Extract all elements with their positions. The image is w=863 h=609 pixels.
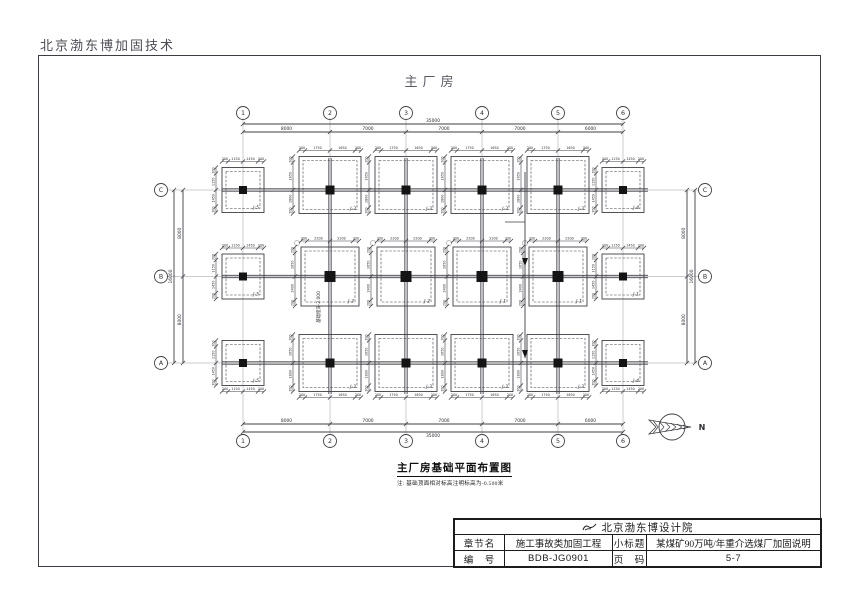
footing-dim: 1150 [611,387,619,391]
column-block [239,273,247,281]
footing-dim: 1150 [212,264,216,272]
grid-bubble-label: 5 [556,438,560,445]
grid-bubble-label: 6 [621,110,625,117]
footing-dim: 200 [592,340,596,346]
footing-dim: 200 [507,146,513,150]
footing-dim: 200 [429,237,435,241]
footing-dim: 200 [451,393,457,397]
sheet-number-label: 编 号 [455,551,505,566]
footing-dim: 200 [431,146,437,150]
footing-dim: 2200 [542,237,550,241]
column-block [619,186,627,194]
column-block [478,186,487,195]
footing-dim: 200 [592,167,596,173]
footing-dim: 200 [355,146,361,150]
footing-dim: 1150 [592,351,596,359]
footing-dim: 2400 [367,284,371,292]
grid-bubble-label: A [703,360,708,367]
footing-dim: 200 [443,300,447,306]
column-block [326,186,335,195]
footing-dim: 200 [529,237,535,241]
subtitle-label: 小标题 [613,535,647,550]
footing-dim: 200 [222,157,228,161]
column-block [553,271,564,282]
footing-dim: 2200 [466,237,474,241]
column-block [554,359,563,368]
footing-dim: 200 [451,146,457,150]
north-label: N [699,423,706,432]
footing-dim: 2400 [443,284,447,292]
footing-dim: 200 [441,334,445,340]
footing-dim: 200 [289,207,293,213]
footing-dim: 1650 [441,172,445,180]
grid-bubble-label: 3 [404,110,408,117]
footing-dim: 1650 [365,172,369,180]
grid-bubble-label: B [703,274,707,281]
footing-dim: 200 [212,340,216,346]
footing-dim: 200 [517,207,521,213]
footing-dim: 1800 [289,370,293,378]
footing-dim: 1750 [389,146,397,150]
footing-dim: 1650 [517,172,521,180]
footing-dim: 1150 [592,264,596,272]
footing-dim: 1450 [626,157,634,161]
footing-dim: 200 [453,237,459,241]
footing-label: J-3 [349,384,356,390]
footing-dim: 200 [355,393,361,397]
footing-dim: 1650 [289,172,293,180]
grid-bubble-label: 4 [480,438,484,445]
footing-dim: 200 [519,247,523,253]
footing-dim: 200 [583,146,589,150]
subtitle-value: 某煤矿90万吨/年重介选煤厂加固说明 [647,535,820,550]
institute-logo-icon [582,522,598,533]
footing-dim: 200 [517,334,521,340]
footing-dim: 1450 [592,194,596,202]
footing-dim: 1750 [465,393,473,397]
dim-bay-bottom: 6000 [585,418,596,424]
grid-bubble-label: A [159,360,164,367]
dim-bay-top: 7000 [514,126,525,132]
sheet-number-value: BDB-JG0901 [505,551,613,566]
dim-total-side: 16000 [168,269,174,283]
grid-bubble-label: C [159,187,164,194]
footing-dim: 1450 [246,244,254,248]
footing-dim: 1650 [566,146,574,150]
footing-label: J-3 [425,384,432,390]
title-block-row-2: 编 号 BDB-JG0901 页 码 5-7 [455,551,820,566]
footing-dim: 1800 [365,370,369,378]
footing-label: J-4 [632,205,639,211]
page-number-label: 页 码 [613,551,647,566]
drawing-caption: 主厂房基础平面布置图 注: 基础顶面相对标高注明标高为-0.500米 [397,458,512,487]
grid-bubble-label: 4 [480,110,484,117]
footing-dim: 200 [212,379,216,385]
footing-dim: 1650 [517,348,521,356]
column-block [478,359,487,368]
footing-dim: 2200 [314,237,322,241]
column-block [402,186,411,195]
footing-dim: 200 [365,334,369,340]
dim-bay-side: 8000 [681,314,687,325]
dim-bay-top: 7000 [438,126,449,132]
footing-dim: 1450 [592,281,596,289]
footing-dim: 200 [258,387,264,391]
footing-dim: 200 [291,247,295,253]
footing-dim: 1450 [212,281,216,289]
dim-total-side: 16000 [689,269,695,283]
footing-dim: 1450 [592,367,596,375]
footing-dim: 1800 [441,195,445,203]
footing-label: J-2 [347,299,354,305]
footing-dim: 1650 [443,261,447,269]
footing-dim: 1150 [611,244,619,248]
footing-dim: 2200 [413,237,421,241]
footing-dim: 1650 [414,393,422,397]
footing-dim: 200 [258,244,264,248]
grid-bubble-label: B [159,274,163,281]
column-block [619,273,627,281]
footing-dim: 200 [365,207,369,213]
footing-dim: 200 [365,385,369,391]
footing-dim: 200 [505,237,511,241]
footing-dim: 200 [375,393,381,397]
footing-dim: 1800 [517,195,521,203]
dim-bay-side: 8000 [177,227,183,238]
column-block [477,271,488,282]
footing-dim: 200 [519,300,523,306]
dim-total-bottom: 35000 [426,433,440,439]
footing-dim: 1150 [231,387,239,391]
footing-dim: 200 [592,379,596,385]
footing-dim: 1150 [212,178,216,186]
caption-note: 注: 基础顶面相对标高注明标高为-0.500米 [397,479,512,487]
dim-bay-bottom: 7000 [438,418,449,424]
footing-dim: 200 [258,157,264,161]
footing-dim: 200 [367,300,371,306]
footing-label: J-3 [349,206,356,212]
north-arrow-icon [659,414,685,440]
footing-dim: 1650 [338,146,346,150]
footing-label: J-4 [632,378,639,384]
footing-dim: 200 [299,146,305,150]
footing-dim: 200 [443,247,447,253]
footing-dim: 2200 [565,237,573,241]
footing-dim: 1150 [212,351,216,359]
footing-dim: 1750 [389,393,397,397]
chapter-name-label: 章节名 [455,535,505,550]
footing-dim: 1650 [490,146,498,150]
footing-dim: 1750 [313,393,321,397]
footing-label: J-3 [501,206,508,212]
footing-dim: 200 [289,334,293,340]
column-block [326,359,335,368]
column-block [239,359,247,367]
grid-bubble-label: 2 [328,438,332,445]
footing-dim: 1650 [566,393,574,397]
footing-dim: 1650 [367,261,371,269]
footing-dim: 200 [507,393,513,397]
page-number-value: 5-7 [647,551,820,566]
footing-dim: 200 [592,206,596,212]
footing-dim: 200 [638,244,644,248]
column-block [239,186,247,194]
footing-dim: 2400 [519,284,523,292]
dim-total-top: 35000 [426,118,440,124]
footing-dim: 1150 [611,157,619,161]
footing-dim: 1650 [365,348,369,356]
footing-dim: 200 [289,156,293,162]
footing-dim: 1650 [291,261,295,269]
footing-dim: 1150 [231,157,239,161]
column-block [619,359,627,367]
footing-dim: 200 [602,244,608,248]
footing-dim: 200 [517,156,521,162]
footing-dim: 1150 [592,178,596,186]
footing-dim: 200 [602,387,608,391]
footing-label: J-1 [632,292,639,298]
footing-dim: 200 [353,237,359,241]
footing-dim: 1650 [338,393,346,397]
footing-label: J-1 [575,299,582,305]
grid-bubble-label: 3 [404,438,408,445]
column-block [325,271,336,282]
footing-dim: 200 [212,254,216,260]
grid-bubble-label: C [703,187,708,194]
dim-bay-side: 8000 [681,227,687,238]
footing-dim: 200 [441,385,445,391]
footing-dim: 1800 [517,370,521,378]
footing-dim: 200 [517,385,521,391]
footing-dim: 1750 [541,393,549,397]
footing-dim: 200 [592,293,596,299]
footing-dim: 200 [441,156,445,162]
footing-dim: 200 [367,247,371,253]
title-block: 北京渤东博设计院 章节名 施工事故类加固工程 小标题 某煤矿90万吨/年重介选煤… [453,518,822,568]
footing-dim: 200 [638,387,644,391]
footing-dim: 2200 [489,237,497,241]
footing-dim: 200 [212,206,216,212]
footing-dim: 1450 [212,367,216,375]
footing-dim: 200 [602,157,608,161]
footing-dim: 1650 [441,348,445,356]
footing-dim: 200 [365,156,369,162]
footing-dim: 200 [527,146,533,150]
footing-dim: 200 [638,157,644,161]
depth-annotation: 基础埋深-2.000 [315,291,322,323]
footing-dim: 200 [377,237,383,241]
footing-dim: 2200 [390,237,398,241]
grid-bubble-label: 5 [556,110,560,117]
grid-bubble-label: 2 [328,110,332,117]
footing-dim: 200 [212,167,216,173]
footing-dim: 200 [583,393,589,397]
footing-dim: 200 [222,244,228,248]
dim-bay-top: 8000 [281,126,292,132]
drawing-sheet: 北京渤东博加固技术 主厂房 35000800070007000700060008… [0,0,863,609]
title-block-row-1: 章节名 施工事故类加固工程 小标题 某煤矿90万吨/年重介选煤厂加固说明 [455,535,820,551]
footing-dim: 1800 [365,195,369,203]
chapter-name-value: 施工事故类加固工程 [505,535,613,550]
footing-dim: 200 [441,207,445,213]
footing-dim: 200 [222,387,228,391]
footing-dim: 1450 [626,244,634,248]
footing-dim: 1750 [313,146,321,150]
dim-bay-side: 8000 [177,314,183,325]
column-block [554,186,563,195]
footing-dim: 1750 [465,146,473,150]
column-block [402,359,411,368]
footing-dim: 1650 [414,146,422,150]
footing-label: J-5 [252,292,259,298]
footing-dim: 1650 [490,393,498,397]
column-block [401,271,412,282]
footing-label: J-1 [499,299,506,305]
dim-bay-bottom: 8000 [281,418,292,424]
footing-dim: 200 [291,300,295,306]
footing-dim: 1800 [289,195,293,203]
footing-label: J-3 [425,206,432,212]
footing-label: J-3 [577,384,584,390]
footing-label: J-3 [577,206,584,212]
footing-dim: 200 [527,393,533,397]
footing-dim: 200 [301,237,307,241]
footing-label: J-3 [501,384,508,390]
footing-dim: 200 [581,237,587,241]
grid-bubble-label: 6 [621,438,625,445]
footing-dim: 200 [299,393,305,397]
dim-bay-bottom: 7000 [514,418,525,424]
footing-dim: 1450 [626,387,634,391]
footing-dim: 1650 [519,261,523,269]
caption-title: 主厂房基础平面布置图 [397,460,512,477]
footing-dim: 200 [431,393,437,397]
dim-bay-top: 7000 [362,126,373,132]
grid-bubble-label: 1 [241,438,245,445]
footing-dim: 1450 [212,194,216,202]
grid-bubble-label: 1 [241,110,245,117]
footing-dim: 2400 [291,284,295,292]
footing-dim: 1450 [246,387,254,391]
footing-dim: 200 [289,385,293,391]
footing-label: J-5 [252,205,259,211]
title-block-header: 北京渤东博设计院 [455,520,820,535]
footing-dim: 200 [212,293,216,299]
footing-label: J-5 [252,378,259,384]
footing-dim: 1150 [231,244,239,248]
dim-bay-top: 6000 [585,126,596,132]
footing-dim: 1750 [541,146,549,150]
institute-name: 北京渤东博设计院 [602,520,694,535]
footing-dim: 1650 [289,348,293,356]
footing-dim: 1800 [441,370,445,378]
footing-label: J-2 [423,299,430,305]
footing-dim: 2200 [337,237,345,241]
footing-dim: 200 [375,146,381,150]
footing-dim: 200 [592,254,596,260]
dim-bay-bottom: 7000 [362,418,373,424]
footing-dim: 1450 [246,157,254,161]
